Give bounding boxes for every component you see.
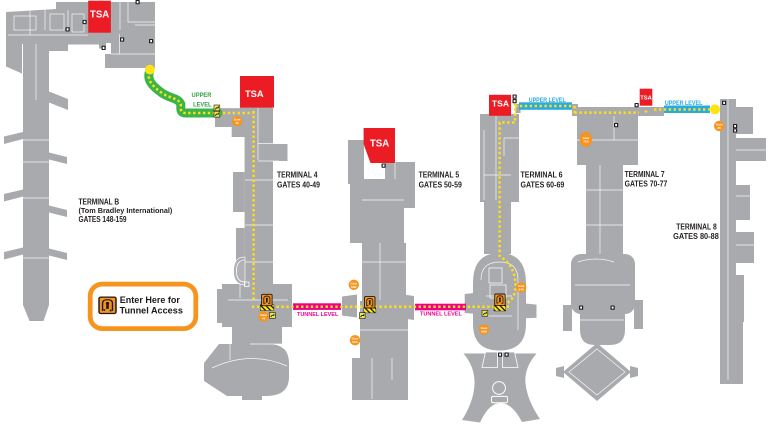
svg-text:64A: 64A [518,287,524,291]
svg-text:41: 41 [236,121,240,125]
svg-text:TERMINAL 4: TERMINAL 4 [277,171,318,180]
svg-text:65B: 65B [481,329,487,333]
svg-text:GATES 40-49: GATES 40-49 [277,180,320,189]
svg-text:TSA: TSA [370,139,389,150]
svg-text:Tunnel Access: Tunnel Access [120,305,183,315]
svg-text:TSA: TSA [492,99,509,109]
svg-text:TSA: TSA [640,96,652,102]
svg-text:TERMINAL 6: TERMINAL 6 [521,171,564,180]
svg-text:(Tom Bradley International): (Tom Bradley International) [79,206,173,215]
svg-text:TUNNEL LEVEL: TUNNEL LEVEL [297,312,339,318]
svg-text:75A: 75A [583,140,589,144]
svg-text:TERMINAL 8: TERMINAL 8 [676,222,717,231]
svg-text:GATES 148-159: GATES 148-159 [79,215,127,224]
svg-text:UPPER LEVEL: UPPER LEVEL [665,100,703,107]
svg-text:GATES 80-88: GATES 80-88 [673,232,719,241]
svg-text:GATES 50-59: GATES 50-59 [419,180,463,189]
svg-text:TERMINAL 5: TERMINAL 5 [419,171,460,180]
svg-text:UPPER LEVEL: UPPER LEVEL [529,97,566,104]
svg-text:TSA: TSA [90,10,109,21]
svg-text:TSA: TSA [245,89,264,99]
svg-text:44: 44 [262,316,266,320]
svg-text:50A: 50A [352,340,358,344]
svg-text:GATES 60-69: GATES 60-69 [521,180,565,189]
svg-text:LEVEL: LEVEL [193,102,211,109]
svg-text:TUNNEL LEVEL: TUNNEL LEVEL [420,312,462,318]
svg-text:53B: 53B [351,285,357,289]
svg-text:88: 88 [718,126,722,130]
svg-text:TERMINAL 7: TERMINAL 7 [625,170,665,179]
svg-text:Enter Here for: Enter Here for [120,295,181,305]
svg-text:UPPER: UPPER [192,92,212,99]
svg-text:GATES 70-77: GATES 70-77 [625,180,668,189]
